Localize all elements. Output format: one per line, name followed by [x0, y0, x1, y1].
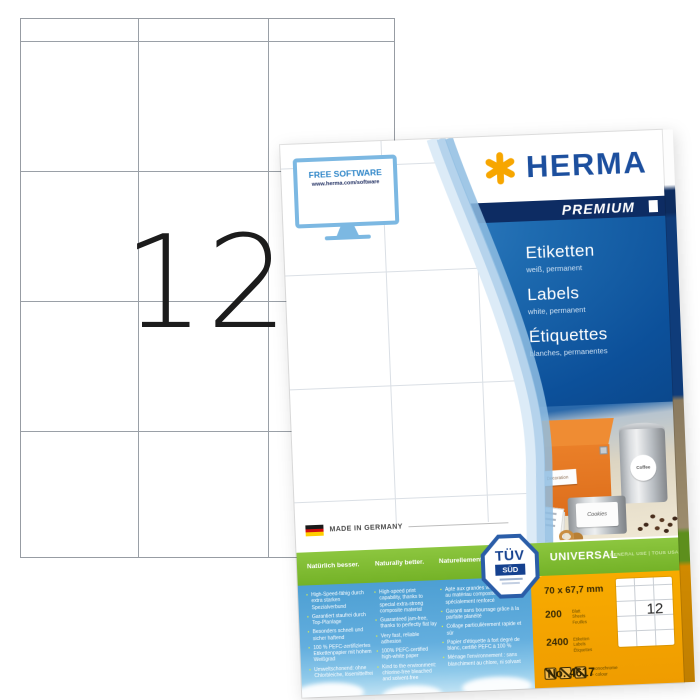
layout-count: 12: [637, 600, 674, 619]
claim-heading-de: Natürlich besser.: [307, 561, 360, 570]
benefits-column-de: High-Speed-fähig durch extra starken Spe…: [306, 590, 374, 694]
layout-diagram: 12: [616, 577, 675, 647]
universal-label: UNIVERSAL: [550, 549, 618, 564]
sheet-count-row: 200 Blatt Sheets Feuilles: [545, 608, 587, 626]
tuv-caption-line: [499, 578, 522, 581]
tuv-caption-line: [502, 582, 520, 585]
claim-heading-en: Naturally better.: [375, 559, 424, 568]
product-box: PREMIUM Etiketten weiß, permanent Labels…: [280, 129, 695, 697]
brand-name: HERMA: [525, 144, 648, 185]
tuv-sud-label: SÜD: [495, 564, 525, 576]
herma-logo: HERMA: [482, 144, 647, 187]
monitor-icon: FREE SOFTWARE www.herma.com/software: [293, 154, 400, 228]
sheet-count: 200: [545, 609, 572, 621]
monitor-stand: [336, 226, 358, 236]
universal-sublabel: GENERAL USE | TOUS USAGES: [610, 550, 684, 558]
product-image: 12 PREMIUM Etiketten weiß, permanent Lab…: [0, 0, 700, 700]
benefits-column-fr: Apte aux grandes vitesses grâce au matér…: [440, 584, 524, 689]
print-mode-note: monochrome + colour: [591, 665, 618, 678]
made-in-germany-label: MADE IN GERMANY: [329, 523, 403, 533]
label-count-units: Etiketten Labels Étiquettes: [573, 636, 592, 653]
label-size: 70 x 67,7 mm: [544, 583, 604, 596]
divider-line: [409, 522, 509, 527]
label-count-row: 2400 Etiketten Labels Étiquettes: [546, 636, 592, 654]
free-software-url: www.herma.com/software: [298, 179, 394, 189]
label-count: 2400: [546, 637, 573, 649]
benefits-column-en: High-speed print capability, thanks to s…: [374, 587, 442, 691]
tuv-label: TÜV: [484, 546, 535, 564]
item-number: No. 4617: [547, 667, 595, 681]
herma-star-icon: [482, 151, 517, 186]
sheet-count-units: Blatt Sheets Feuilles: [572, 608, 587, 625]
box-front: PREMIUM Etiketten weiß, permanent Labels…: [280, 130, 684, 698]
german-flag-icon: [305, 525, 323, 537]
free-software-monitor: FREE SOFTWARE www.herma.com/software: [293, 154, 400, 241]
sheet-grid-line: [21, 41, 394, 42]
spec-panel: 70 x 67,7 mm 200 Blatt Sheets Feuilles 2…: [531, 570, 684, 688]
labels-per-sheet-number: 12: [123, 219, 283, 349]
